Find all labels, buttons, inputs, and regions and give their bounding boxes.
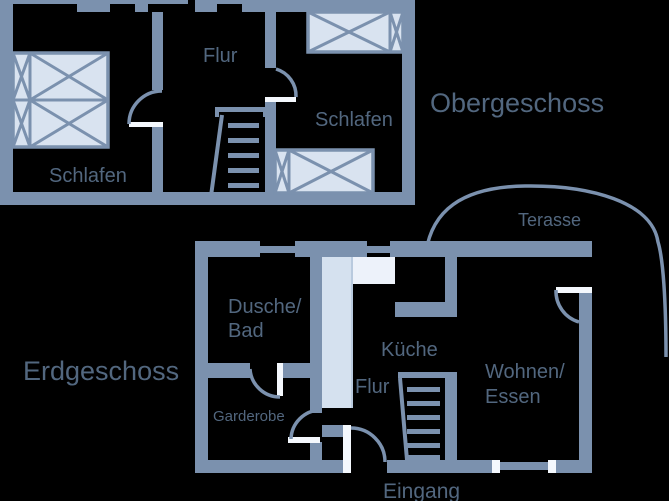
obergeschoss-plan: Flur Schlafen Schlafen	[0, 0, 415, 205]
room-label-essen: Essen	[485, 386, 541, 408]
area-label-terasse: Terasse	[518, 210, 581, 230]
room-label-dusche: Dusche/	[228, 296, 302, 318]
door-swing	[351, 428, 385, 462]
floor-plan-canvas: Flur Schlafen Schlafen Obergeschoss Tera…	[0, 0, 669, 501]
window-jamb	[548, 460, 556, 473]
door-leaf	[343, 425, 351, 473]
door-leaf	[556, 287, 592, 293]
room-label-schlafen-left: Schlafen	[49, 165, 127, 187]
erdgeschoss-plan: Terasse	[195, 186, 666, 501]
door-swing	[250, 369, 280, 397]
obergeschoss-stairs	[211, 107, 267, 196]
room-label-flur-eg: Flur	[355, 376, 390, 398]
bed-symbol-top-right	[308, 12, 403, 52]
window-jamb	[492, 460, 500, 473]
area-label-eingang: Eingang	[383, 480, 460, 501]
door-leaf	[277, 363, 283, 396]
floor-plan-page: Flur Schlafen Schlafen Obergeschoss Tera…	[0, 0, 669, 501]
floor-title-obergeschoss: Obergeschoss	[430, 88, 604, 118]
room-label-flur-og: Flur	[203, 45, 238, 67]
floor-title-erdgeschoss: Erdgeschoss	[23, 356, 179, 386]
obergeschoss-wall-schlafen-left	[129, 12, 163, 193]
bed-symbol-left	[13, 53, 108, 147]
door-swing	[556, 290, 579, 322]
room-label-kueche: Küche	[381, 339, 438, 361]
door-leaf	[129, 122, 163, 127]
entrance-door	[343, 425, 385, 473]
room-label-bad: Bad	[228, 320, 264, 342]
room-label-schlafen-right: Schlafen	[315, 109, 393, 131]
door-swing	[276, 69, 296, 97]
bed-symbol-bottom-right	[275, 150, 373, 193]
door-swing	[291, 410, 320, 439]
room-label-wohnen: Wohnen/	[485, 361, 565, 383]
room-label-garderobe: Garderobe	[213, 408, 285, 425]
door-leaf	[265, 97, 296, 102]
door-swing	[129, 91, 162, 124]
